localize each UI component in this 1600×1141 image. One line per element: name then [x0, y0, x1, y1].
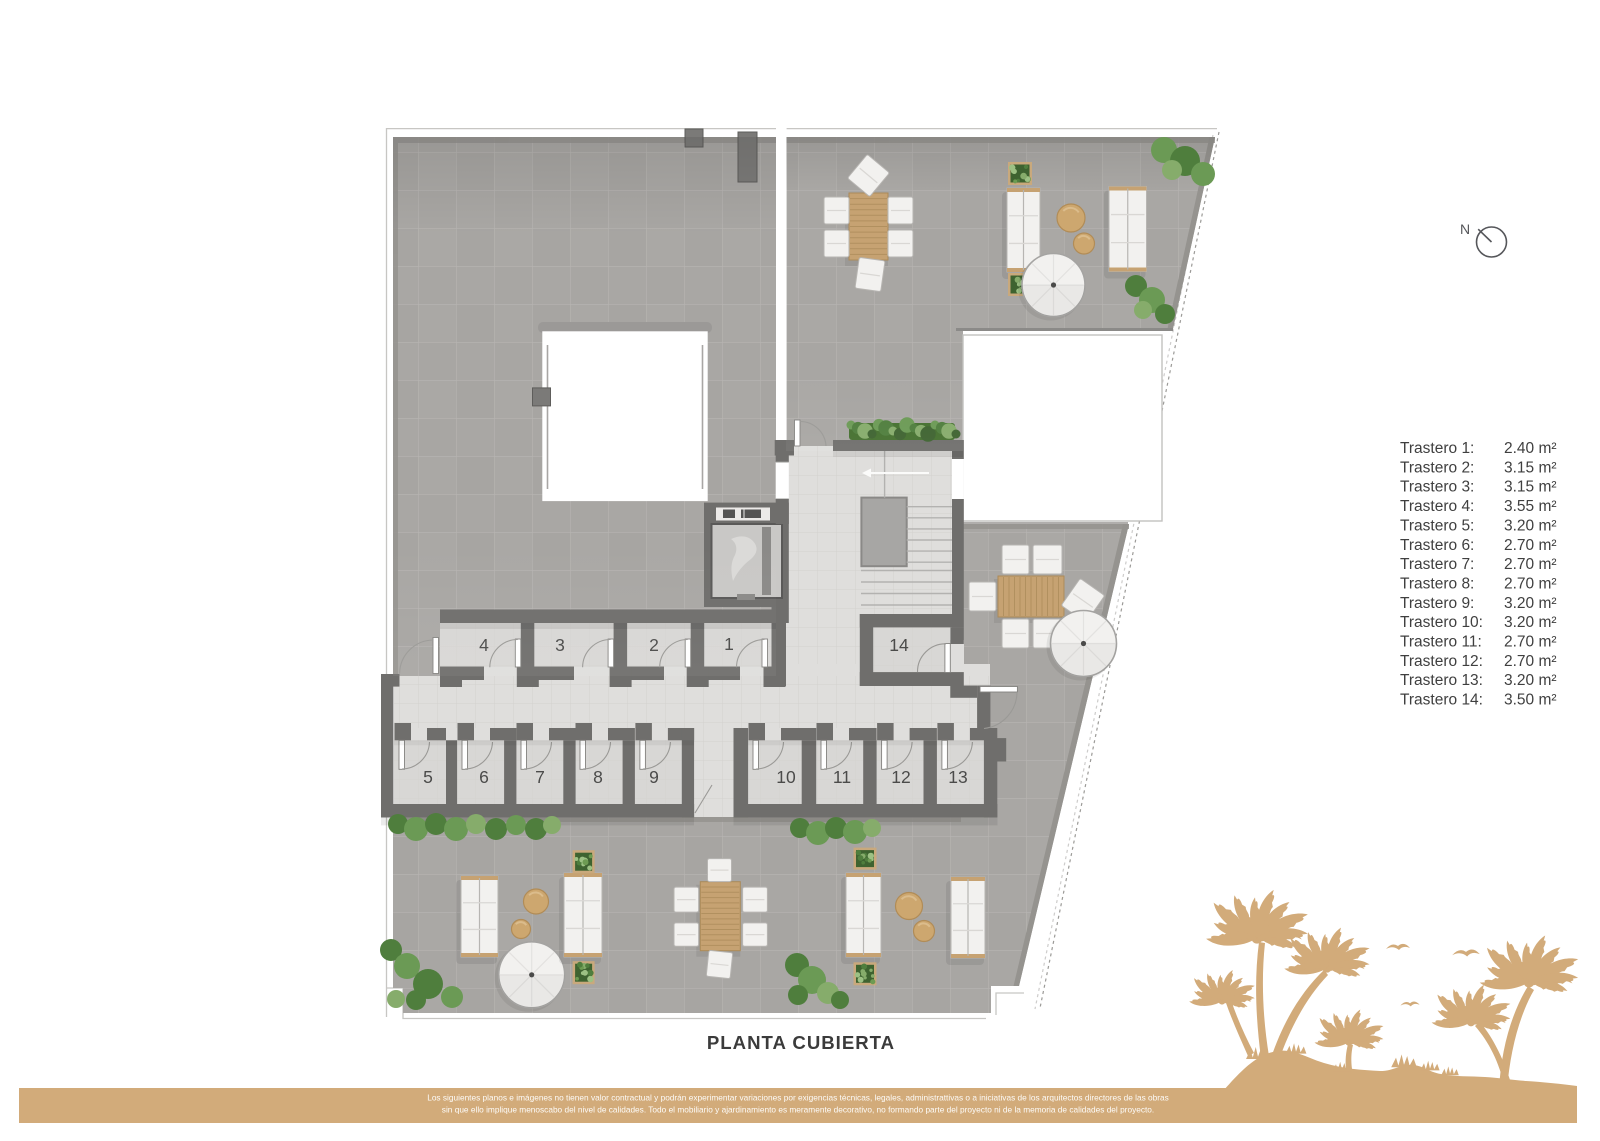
svg-text:14: 14	[889, 635, 909, 655]
svg-text:3.20 m²: 3.20 m²	[1504, 517, 1557, 534]
svg-text:sin que ello implique menoscab: sin que ello implique menoscabo del nive…	[442, 1105, 1154, 1115]
svg-text:Los siguientes planos e imágen: Los siguientes planos e imágenes no tien…	[427, 1093, 1169, 1103]
svg-text:Trastero 14:: Trastero 14:	[1400, 692, 1483, 709]
svg-text:8: 8	[593, 767, 603, 787]
svg-text:2.70 m²: 2.70 m²	[1504, 653, 1557, 670]
svg-text:Trastero 12:: Trastero 12:	[1400, 653, 1483, 670]
svg-text:12: 12	[891, 767, 910, 787]
svg-text:2.70 m²: 2.70 m²	[1504, 556, 1557, 573]
svg-text:PLANTA CUBIERTA: PLANTA CUBIERTA	[707, 1032, 895, 1053]
svg-text:2.70 m²: 2.70 m²	[1504, 634, 1557, 651]
svg-text:Trastero 9:: Trastero 9:	[1400, 595, 1474, 612]
svg-text:3.20 m²: 3.20 m²	[1504, 595, 1557, 612]
svg-text:3.15 m²: 3.15 m²	[1504, 479, 1557, 496]
svg-text:Trastero 5:: Trastero 5:	[1400, 517, 1474, 534]
svg-text:3.50 m²: 3.50 m²	[1504, 692, 1557, 709]
svg-text:2.70 m²: 2.70 m²	[1504, 576, 1557, 593]
svg-text:Trastero 6:: Trastero 6:	[1400, 537, 1474, 554]
svg-text:5: 5	[423, 767, 433, 787]
svg-text:9: 9	[649, 767, 659, 787]
svg-text:Trastero 4:: Trastero 4:	[1400, 498, 1474, 515]
svg-text:11: 11	[833, 767, 851, 787]
svg-text:Trastero 10:: Trastero 10:	[1400, 614, 1483, 631]
svg-text:Trastero 7:: Trastero 7:	[1400, 556, 1474, 573]
svg-text:2.40 m²: 2.40 m²	[1504, 440, 1557, 457]
svg-text:Trastero 8:: Trastero 8:	[1400, 576, 1474, 593]
svg-text:3.55 m²: 3.55 m²	[1504, 498, 1557, 515]
svg-text:Trastero 13:: Trastero 13:	[1400, 672, 1483, 689]
svg-text:Trastero 2:: Trastero 2:	[1400, 459, 1474, 476]
svg-text:Trastero 1:: Trastero 1:	[1400, 440, 1474, 457]
svg-text:N: N	[1460, 221, 1470, 237]
svg-text:3.15 m²: 3.15 m²	[1504, 459, 1557, 476]
svg-text:10: 10	[776, 767, 796, 787]
svg-text:3.20 m²: 3.20 m²	[1504, 614, 1557, 631]
svg-text:Trastero 11:: Trastero 11:	[1400, 634, 1482, 651]
svg-text:6: 6	[479, 767, 489, 787]
svg-text:Trastero 3:: Trastero 3:	[1400, 479, 1474, 496]
svg-text:3.20 m²: 3.20 m²	[1504, 672, 1557, 689]
svg-text:2.70 m²: 2.70 m²	[1504, 537, 1557, 554]
svg-text:13: 13	[948, 767, 967, 787]
svg-text:7: 7	[535, 767, 545, 787]
